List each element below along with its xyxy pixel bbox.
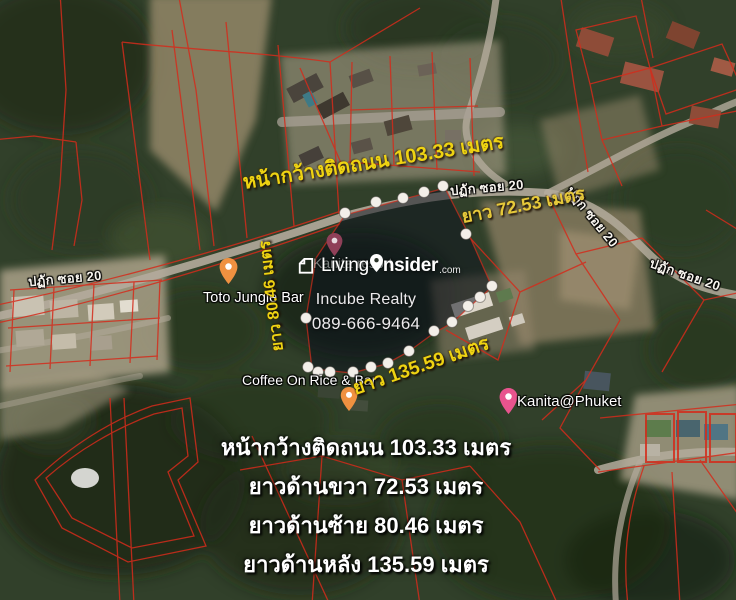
brand-livinginsider: Living nsider .com [296, 255, 461, 277]
hotel-pin-icon [499, 388, 518, 419]
dimension-summary: หน้ากว้างติดถนน 103.33 เมตร ยาวด้านขวา 7… [143, 428, 589, 584]
brand-text-tld: .com [439, 265, 461, 276]
land-listing-map-image: Toto Jungle Bar Kanita resort Coffee On … [0, 0, 736, 600]
brand-text-insider: nsider [383, 255, 438, 277]
brand-logo-icon [296, 256, 316, 276]
watermark-agency: Incube Realty [256, 291, 476, 309]
summary-line-left: ยาวด้านซ้าย 80.46 เมตร [143, 506, 589, 545]
brand-text-living: Living [321, 255, 369, 277]
summary-line-back: ยาวด้านหลัง 135.59 เมตร [143, 545, 589, 584]
restaurant-pin-icon [219, 258, 238, 289]
brand-pin-icon [370, 254, 383, 272]
poi-label-kanita-phuket: Kanita@Phuket [517, 394, 621, 411]
watermark-phone: 089-666-9464 [256, 314, 476, 334]
summary-line-right: ยาวด้านขวา 72.53 เมตร [143, 467, 589, 506]
summary-line-frontage: หน้ากว้างติดถนน 103.33 เมตร [143, 428, 589, 467]
